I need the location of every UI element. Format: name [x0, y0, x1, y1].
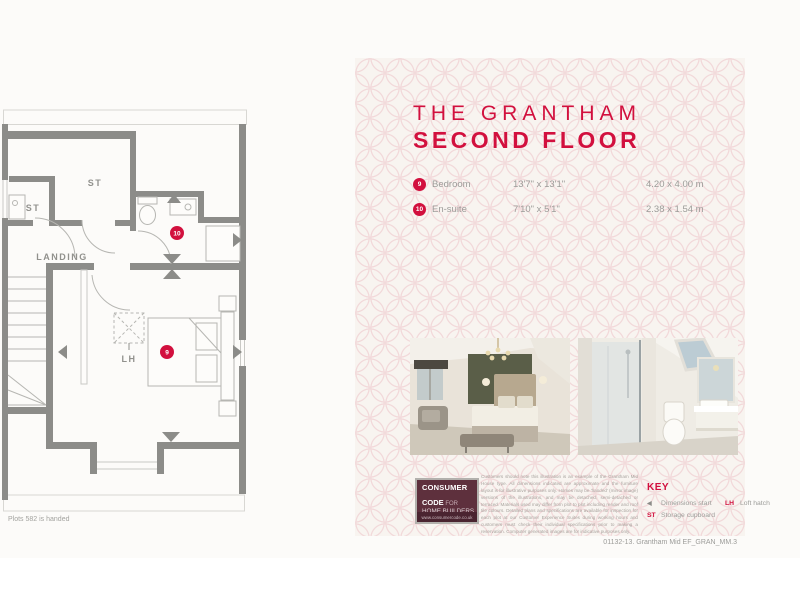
room-dimensions-list: 9 Bedroom 13'7" x 13'1" 4.20 x 4.00 m 10…	[413, 178, 704, 228]
logo-line1: CONSUMER	[422, 484, 477, 492]
room-row-ensuite: 10 En-suite 7'10" x 5'1" 2.38 x 1.54 m	[413, 203, 704, 216]
key-label-dimensions: Dimensions start	[661, 500, 725, 507]
page-bottom-margin	[0, 558, 800, 600]
loft-hatch: LH	[114, 313, 144, 364]
key-symbol-st: ST	[647, 512, 661, 519]
document-reference: 01132-13. Grantham Mid EF_GRAN_MM.3	[603, 539, 737, 546]
room-imperial-size: 13'7" x 13'1"	[513, 179, 646, 190]
storage-fixture	[9, 195, 25, 219]
consumer-code-logo: CONSUMER CODE FOR HOME BUILDERS www.cons…	[415, 478, 479, 524]
loft-hatch-label: LH	[122, 354, 137, 364]
stairs	[8, 277, 46, 405]
svg-text:9: 9	[165, 350, 169, 357]
toilet-fixture	[138, 197, 157, 225]
bedroom-photo	[410, 338, 570, 455]
plots-note: Plots 582 is handed	[8, 516, 70, 523]
title-block: THE GRANTHAM SECOND FLOOR	[413, 102, 641, 153]
logo-line2-strong: CODE	[422, 498, 444, 507]
logo-line2-light: FOR	[444, 501, 458, 507]
bed	[148, 296, 236, 416]
ensuite-badge: 10	[170, 226, 184, 240]
key-heading: KEY	[647, 482, 770, 493]
roof-outline-top	[4, 110, 247, 125]
disclaimer-text: Customers should note this illustration …	[481, 474, 638, 536]
ensuite-photo	[578, 338, 738, 455]
storage-top-label: ST	[88, 178, 103, 188]
room-badge-9: 9	[413, 178, 426, 191]
info-panel: THE GRANTHAM SECOND FLOOR 9 Bedroom 13'7…	[355, 58, 745, 536]
page-subtitle: SECOND FLOOR	[413, 128, 641, 153]
landing-label: LANDING	[36, 252, 88, 262]
room-imperial-size: 7'10" x 5'1"	[513, 204, 646, 215]
room-name: En-suite	[432, 204, 513, 215]
roof-outline-bottom	[4, 495, 245, 511]
storage-left-label: ST	[26, 203, 41, 213]
key-label-loft-hatch: Loft hatch	[740, 500, 770, 507]
floor-plan: LH ST ST LANDING 10 9	[2, 107, 248, 519]
room-metric-size: 4.20 x 4.00 m	[646, 179, 704, 190]
dimensions-start-icon: ◀	[647, 500, 661, 507]
plan-key: KEY ◀ Dimensions start LH Loft hatch ST …	[647, 482, 770, 519]
key-symbol-lh: LH	[725, 500, 740, 507]
bedroom-badge: 9	[160, 345, 174, 359]
bedroom-partition	[81, 270, 87, 384]
mirror	[698, 358, 734, 402]
plan-walls	[2, 124, 246, 500]
page-title: THE GRANTHAM	[413, 102, 641, 125]
room-badge-10: 10	[413, 203, 426, 216]
room-name: Bedroom	[432, 179, 513, 190]
logo-url: www.consumercode.co.uk	[417, 512, 477, 522]
room-row-bedroom: 9 Bedroom 13'7" x 13'1" 4.20 x 4.00 m	[413, 178, 704, 191]
svg-text:10: 10	[173, 231, 181, 238]
key-label-storage: Storage cupboard	[661, 512, 725, 519]
room-metric-size: 2.38 x 1.54 m	[646, 204, 704, 215]
